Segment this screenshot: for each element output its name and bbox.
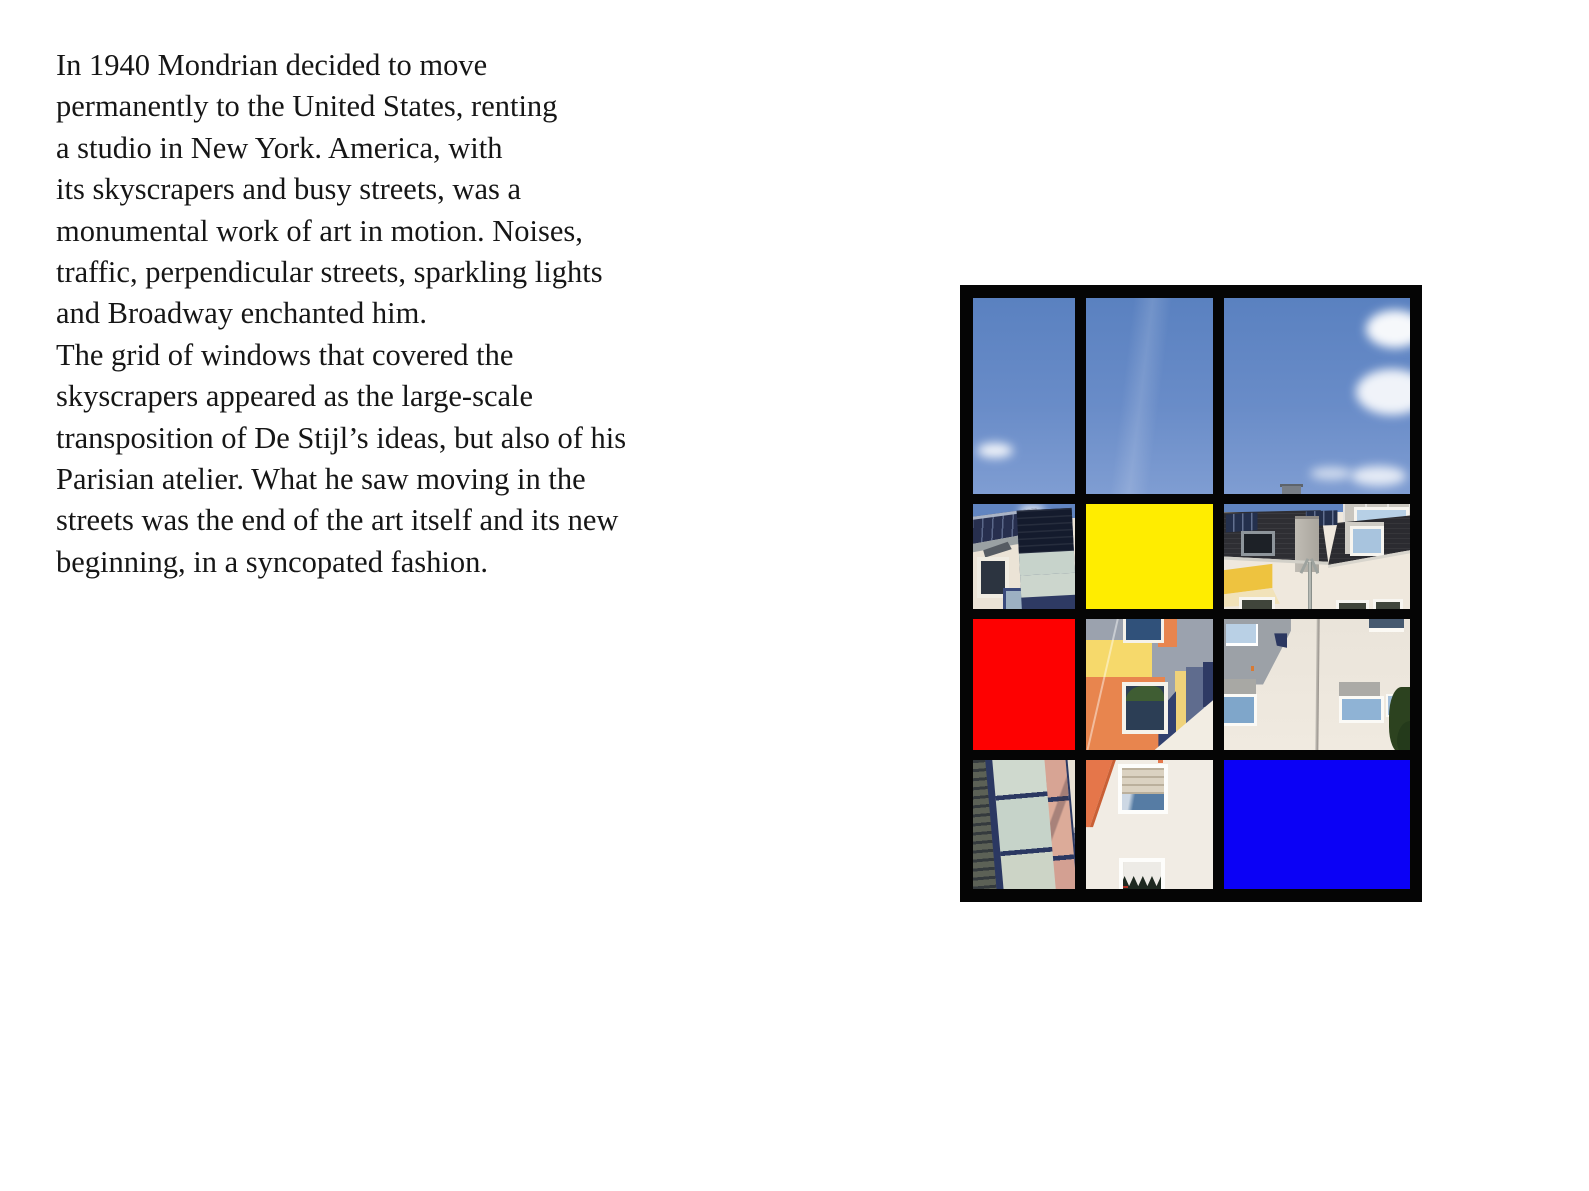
article-line: a studio in New York. America, with [56,128,626,169]
window [1122,682,1168,735]
frosted-glass-pane [1019,551,1075,575]
cloud [1366,310,1410,348]
glass-stair-tower [1017,508,1075,609]
window [1350,526,1384,556]
curtain-wall [973,760,1075,889]
article-line: its skyscrapers and busy streets, was a [56,169,626,210]
shuttered-window [1118,764,1168,815]
wall-windows-photo [1086,760,1213,889]
window [1336,600,1370,609]
frosted-glass-pane [1020,573,1075,598]
sky-photo-left [973,298,1075,494]
article-line: monumental work of art in motion. Noises… [56,211,626,252]
article-line: streets was the end of the art itself an… [56,500,626,541]
window [1123,619,1165,643]
lace-curtain [1123,862,1161,886]
rooftop-solar-tower-photo [973,504,1075,609]
chimney [1282,486,1301,494]
street-lamp-pole [1308,562,1312,609]
red-block [973,619,1075,750]
cloud [1356,369,1410,415]
window-plants [1126,686,1164,701]
colorful-facade-photo [1086,619,1213,750]
red-detail [1123,886,1128,888]
window [1224,694,1257,726]
tinted-glass-pane [1017,508,1074,554]
sky-photo-middle [1086,298,1213,494]
article-text: In 1940 Mondrian decided to move permane… [56,45,626,583]
contrail-haze [1108,298,1173,494]
article-line: transposition of De Stijl’s ideas, but a… [56,418,626,459]
yellow-field [1086,640,1152,678]
article-line: The grid of windows that covered the [56,335,626,376]
curtain-window [1119,858,1165,889]
article-line: traffic, perpendicular streets, sparklin… [56,252,626,293]
sky-photo-right [1224,298,1410,494]
orange-detail [1158,760,1162,763]
downpipe [1315,619,1320,750]
article-line: Parisian atelier. What he saw moving in … [56,459,626,500]
white-facade-photo [1224,619,1410,750]
yellow-block [1086,504,1213,609]
window [1339,696,1384,723]
article-line: In 1940 Mondrian decided to move [56,45,626,86]
article-line: permanently to the United States, rentin… [56,86,626,127]
window-glass [1122,794,1164,810]
window [1369,619,1404,632]
window [1226,624,1258,645]
cloud [1351,466,1406,486]
cloud [977,443,1013,458]
roller-shutter [1122,768,1164,794]
window [1239,597,1275,609]
glass-facade-photo [973,760,1075,889]
article-line: beginning, in a syncopated fashion. [56,542,626,583]
article-line: and Broadway enchanted him. [56,293,626,334]
navy-stripe [1203,662,1213,707]
window [1373,599,1403,609]
rooftops-streetlamp-photo [1224,504,1410,609]
mondrian-window-grid-artwork [960,285,1422,902]
article-line: skyscrapers appeared as the large-scale [56,376,626,417]
orange-detail [1251,666,1254,671]
blue-block [1224,760,1410,889]
skylight-window [1241,531,1275,556]
cloud [1310,467,1352,480]
